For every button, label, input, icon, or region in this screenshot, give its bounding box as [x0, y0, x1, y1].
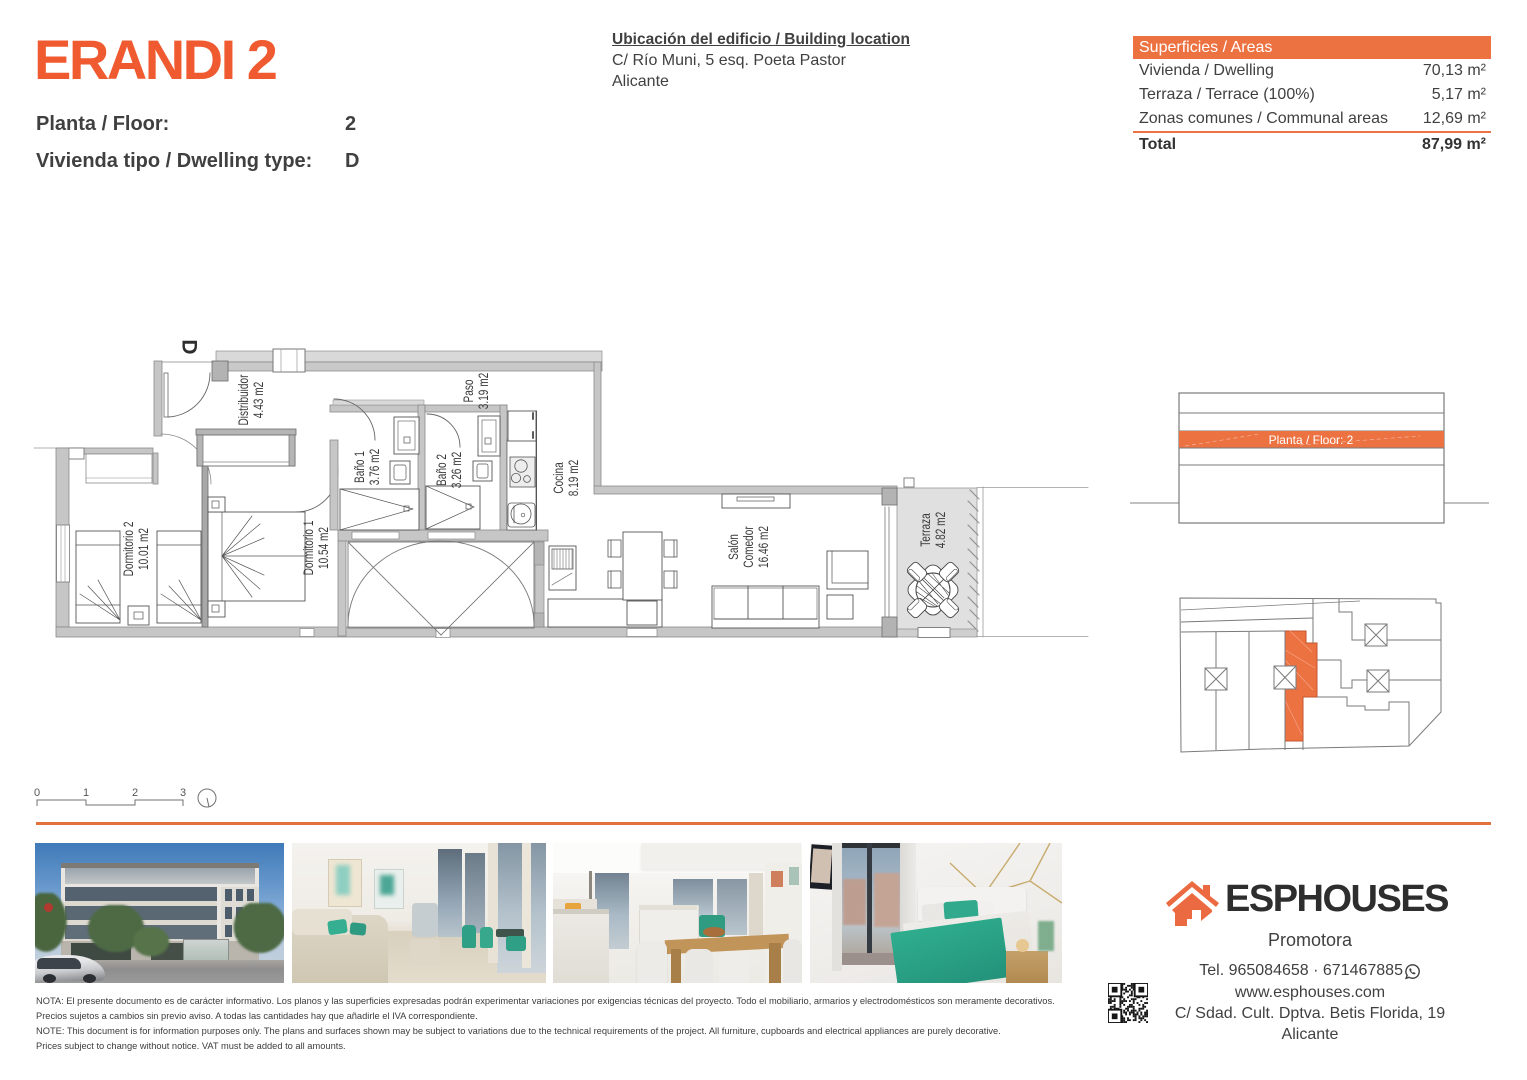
- svg-text:Distribuidor: Distribuidor: [235, 375, 251, 426]
- svg-text:16.46 m2: 16.46 m2: [755, 526, 771, 568]
- svg-text:3.19 m2: 3.19 m2: [475, 373, 491, 410]
- svg-text:Terraza: Terraza: [917, 513, 933, 547]
- svg-text:Comedor: Comedor: [740, 526, 756, 567]
- svg-text:4.43 m2: 4.43 m2: [250, 382, 266, 419]
- svg-text:10.54 m2: 10.54 m2: [315, 527, 331, 569]
- svg-text:0: 0: [34, 787, 40, 799]
- svg-text:Planta / Floor: 2: Planta / Floor: 2: [1269, 433, 1354, 447]
- svg-text:8.19 m2: 8.19 m2: [565, 460, 581, 497]
- svg-text:Paso: Paso: [460, 379, 476, 402]
- svg-text:2: 2: [132, 787, 138, 799]
- svg-text:3.26 m2: 3.26 m2: [448, 452, 464, 489]
- svg-text:3: 3: [180, 787, 186, 799]
- svg-text:D: D: [178, 339, 201, 354]
- svg-text:Cocina: Cocina: [550, 462, 566, 494]
- svg-text:Dormitorio 1: Dormitorio 1: [300, 520, 316, 575]
- svg-text:10.01 m2: 10.01 m2: [135, 528, 151, 570]
- svg-text:4.82 m2: 4.82 m2: [932, 512, 948, 549]
- svg-text:Dormitorio 2: Dormitorio 2: [120, 521, 136, 576]
- svg-text:Baño 1: Baño 1: [351, 451, 367, 483]
- svg-text:Salón: Salón: [725, 534, 741, 560]
- svg-text:Baño 2: Baño 2: [433, 454, 449, 486]
- svg-text:1: 1: [83, 787, 89, 799]
- svg-text:3.76 m2: 3.76 m2: [366, 449, 382, 486]
